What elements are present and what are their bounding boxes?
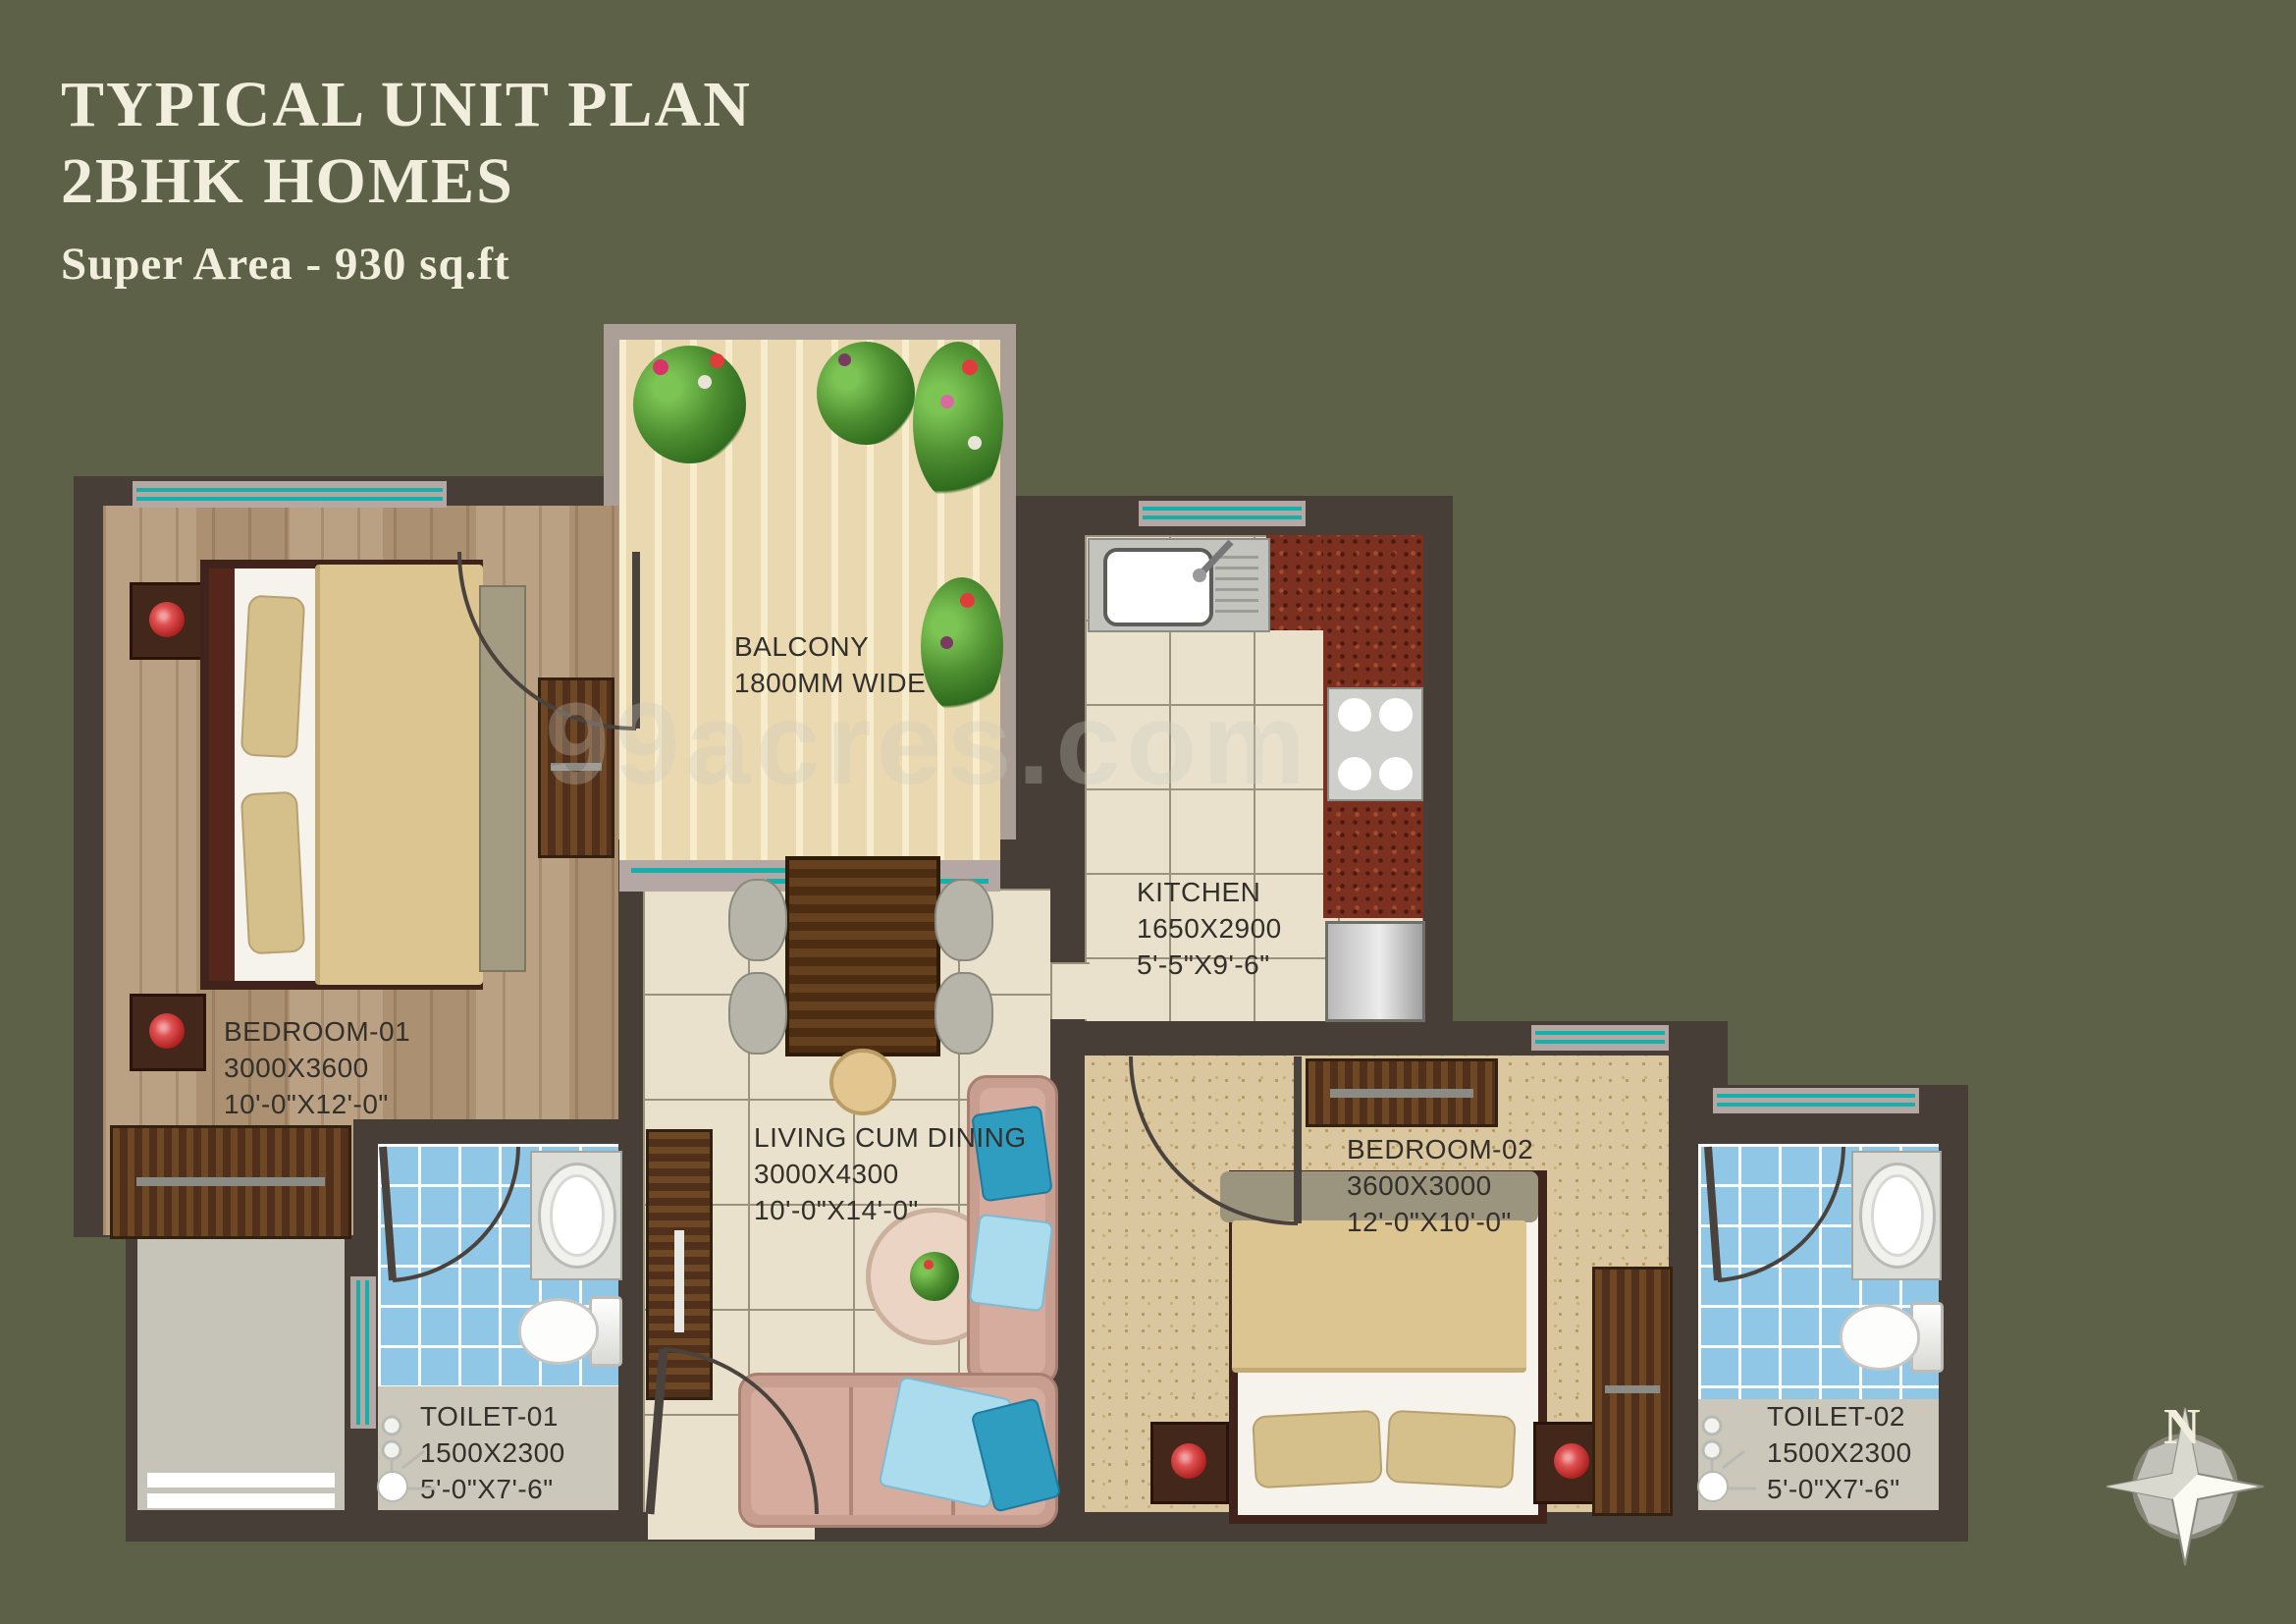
bedroom1-wardrobe [110,1125,351,1239]
plan-header: TYPICAL UNIT PLAN 2BHK HOMES Super Area … [61,67,752,291]
wc-icon [1840,1304,1920,1371]
tv-unit [646,1129,713,1400]
bedroom2-nightstand-left [1150,1422,1229,1504]
bed-duvet [315,565,483,985]
dining-chair [728,879,787,961]
compass-rose-icon: N [2107,1399,2264,1565]
flower-pot-icon [1554,1443,1589,1479]
dining-chair [934,879,993,961]
kitchen-opening [1050,962,1090,1019]
bedroom2-dresser [1592,1267,1673,1516]
toilet2-window [1713,1088,1919,1113]
balcony-plant-icon [921,577,1003,715]
living-label: LIVING CUM DINING 3000X4300 10'-0"X14'-0… [754,1119,1027,1228]
floor-plan-page: { "header": { "title_line1": "TYPICAL UN… [0,0,2296,1624]
flower-pot-icon [1171,1443,1206,1479]
dining-table [785,856,940,1056]
bedroom1-nightstand-top [130,582,206,660]
porch-step-2 [147,1493,335,1508]
bedroom2-wardrobe [1306,1058,1498,1127]
bed-pillow [1385,1410,1517,1489]
page-subtitle-bhk: 2BHK HOMES [61,143,752,220]
toilet1-label: TOILET-01 1500X2300 5'-0"X7'-6" [420,1398,565,1507]
fridge-icon [1325,921,1425,1022]
toilet2-label: TOILET-02 1500X2300 5'-0"X7'-6" [1767,1398,1912,1507]
kitchen-label: KITCHEN 1650X2900 5'-5"X9'-6" [1137,874,1282,983]
kitchen-window [1139,501,1306,526]
dining-stool [829,1049,896,1115]
bedroom1-dresser [538,677,614,858]
balcony-plant-icon [817,342,915,445]
page-title: TYPICAL UNIT PLAN [61,67,752,143]
bedroom1-nightstand-bottom [130,994,206,1071]
bedroom1-label: BEDROOM-01 3000X3600 10'-0"X12'-0" [224,1013,410,1122]
compass-north-label: N [2163,1399,2201,1455]
flower-pot-icon [149,602,185,637]
entry-porch [137,1239,345,1510]
porch-step-1 [147,1473,335,1488]
bed-pillow [240,791,306,955]
bed-pillow [240,595,306,759]
bed-duvet [1232,1220,1526,1373]
wc-icon [518,1298,599,1365]
toilet1-window [350,1276,376,1429]
bed-pillow [1252,1410,1383,1489]
bedroom2-window [1531,1025,1669,1051]
bedroom2-label: BEDROOM-02 3600X3000 12'-0"X10'-0" [1347,1131,1533,1240]
kitchen-drainboard [1215,548,1258,619]
bedroom1-window [133,481,447,508]
balcony-plant-icon [913,342,1003,504]
kitchen-sink-icon [1103,548,1213,626]
tv-icon [674,1230,684,1332]
super-area-text: Super Area - 930 sq.ft [61,238,752,291]
balcony-label: BALCONY 1800MM WIDE [734,628,926,701]
washbasin-icon [1859,1163,1936,1269]
table-flowers-icon [910,1252,959,1301]
balcony-plant-icon [633,346,746,463]
dining-chair [728,972,787,1055]
bed-headboard [209,568,235,981]
flower-pot-icon [149,1013,185,1049]
washbasin-icon [538,1163,616,1269]
gas-hob-icon [1327,687,1423,801]
bedroom1-foot-bench [479,585,526,972]
dining-chair [934,972,993,1055]
bedroom1-double-bed [200,560,483,990]
